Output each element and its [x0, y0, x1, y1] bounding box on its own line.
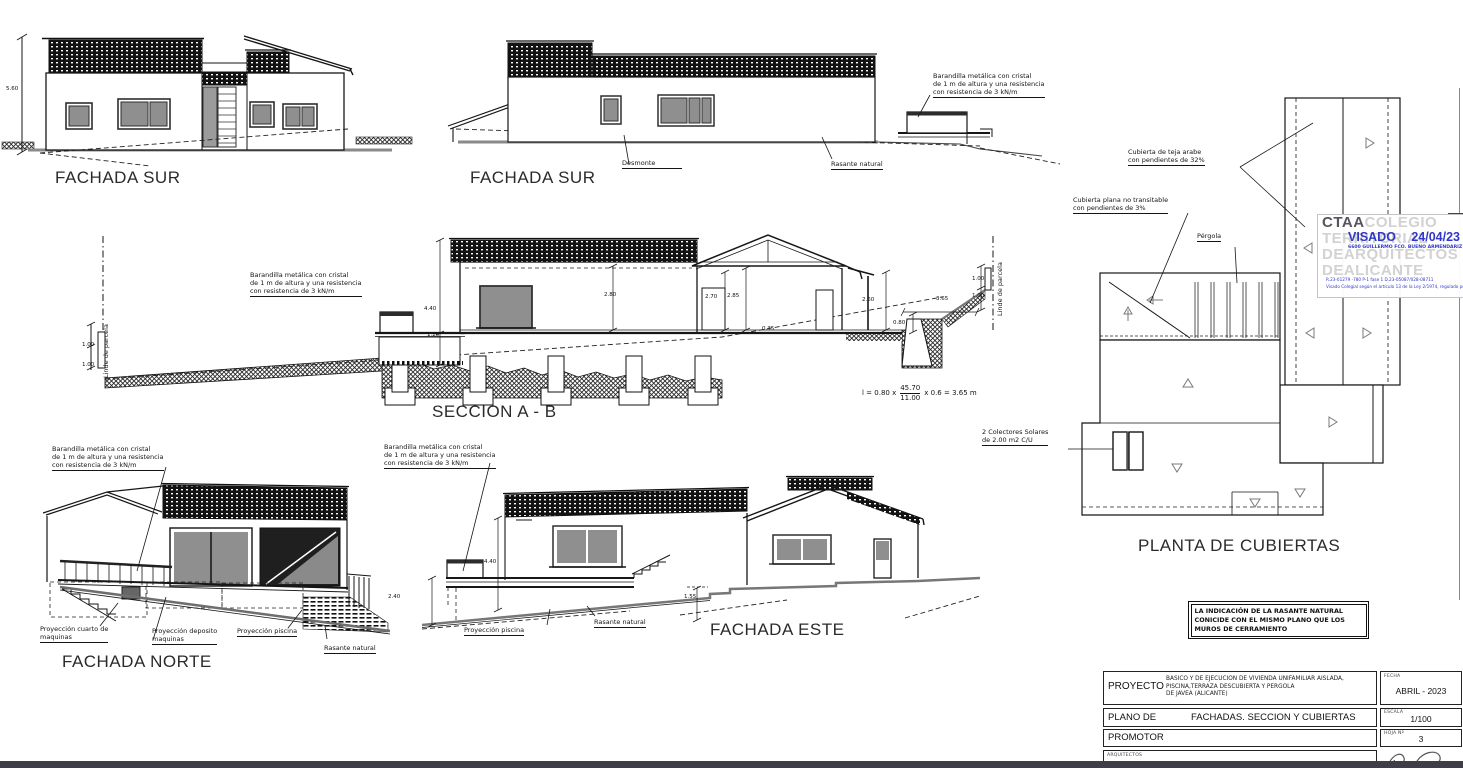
- terrace-railing: [898, 112, 992, 144]
- left-block-wall: [505, 511, 747, 585]
- stamp-ctaa: CTAA: [1322, 214, 1365, 231]
- bottom-bar: [0, 761, 1463, 768]
- roof-plan-mid-block: [1280, 385, 1383, 463]
- roof-tiles-main: [592, 56, 875, 77]
- dim-280: 2.80: [604, 292, 616, 298]
- fachada-sur-2-drawing: [420, 25, 1065, 190]
- barandilla-note-3: Barandilla metálica con cristalde 1 m de…: [52, 445, 164, 471]
- slab-hatch: [846, 334, 902, 341]
- dim-sur-altura: 5.60: [6, 86, 18, 92]
- stamp-visado-word: VISADO: [1348, 230, 1396, 244]
- stamp-colegio: COLEGIO: [1365, 214, 1438, 231]
- height-dimension-line: [17, 34, 27, 155]
- linde-parcela-left: Linde de parcela: [102, 324, 110, 378]
- plano-value: FACHADAS. SECCION Y CUBIERTAS: [1191, 712, 1356, 723]
- linde-parcela-right: Linde de parcela: [996, 262, 1004, 316]
- dim-260: 2.60: [862, 297, 874, 303]
- hoja-value: 3: [1381, 734, 1461, 744]
- fachada-este-label: FACHADA ESTE: [710, 620, 844, 640]
- note-line-2: CONICIDE CON EL MISMO PLANO QUE LOS: [1195, 616, 1363, 625]
- pergola-label: Pérgola: [1197, 232, 1221, 242]
- flat-roof-tiles: [451, 240, 697, 262]
- dim-100-d: 1.00: [972, 293, 984, 299]
- planta-cubiertas-label: PLANTA DE CUBIERTAS: [1138, 536, 1340, 556]
- fecha-value: ABRIL - 2023: [1381, 686, 1461, 696]
- dim-080: 0.80: [893, 320, 905, 326]
- dim-440: 4.40: [424, 306, 436, 312]
- pool-hatch: [303, 597, 388, 632]
- terrace-structure: [379, 337, 460, 365]
- proyeccion-piscina-label-1: Proyección piscina: [237, 627, 297, 637]
- section-window: [480, 286, 532, 328]
- rasante-natural-label-3: Rasante natural: [594, 618, 646, 628]
- rasante-note-box: LA INDICACIÓN DE LA RASANTE NATURAL CONI…: [1188, 601, 1369, 639]
- proyecto-description: BASICO Y DE EJECUCION DE VIVIENDA UNIFAM…: [1166, 676, 1344, 699]
- fecha-label: FECHA: [1384, 674, 1400, 679]
- planta-cubiertas-drawing: [1060, 88, 1463, 538]
- stamp-colegiado: 6600 GUILLERMO FCO. BUENO ARMENDARIZ: [1348, 245, 1462, 250]
- fachada-norte-label: FACHADA NORTE: [62, 652, 212, 672]
- desmonte-label: Desmonte: [622, 159, 682, 169]
- windows: [601, 95, 714, 126]
- fachada-sur-1-drawing: [0, 25, 420, 190]
- rasante-natural-label-2: Rasante natural: [324, 644, 376, 654]
- dim-270: 2.70: [705, 294, 717, 300]
- arquitectos-label: ARQUITECTOS: [1107, 753, 1142, 758]
- barandilla-note-1: Barandilla metálica con cristalde 1 m de…: [933, 72, 1045, 98]
- fachada-sur-2-label: FACHADA SUR: [470, 168, 595, 188]
- lean-to-roof: [448, 104, 510, 142]
- visado-stamp: CTAACOLEGIO TERRITORIAL DEARQUITECTOS DE…: [1317, 214, 1463, 298]
- rasante-dashed: [422, 596, 980, 629]
- seccion-label: SECCION A - B: [432, 402, 557, 422]
- dim-este-440: 4.40: [484, 559, 496, 565]
- stamp-legal-line: Visado Colegial según el artículo 13 de …: [1326, 284, 1463, 289]
- drawing-sheet: 5.60 FACHADA SUR Barandilla metálica con…: [0, 0, 1463, 768]
- cubierta-teja-label: Cubierta de teja arabecon pendientes de …: [1128, 148, 1205, 166]
- solar-collector-1: [1113, 432, 1127, 470]
- dim-285: 2.85: [727, 293, 739, 299]
- roof-tiles: [163, 485, 347, 520]
- proyecto-label: PROYECTO: [1108, 681, 1164, 692]
- note-line-1: LA INDICACIÓN DE LA RASANTE NATURAL: [1195, 607, 1363, 616]
- dim-este-240: 2.40: [388, 594, 400, 600]
- cell-plano: PLANO DE FACHADAS. SECCION Y CUBIERTAS: [1103, 708, 1377, 727]
- dim-100-a: 1.00: [82, 342, 94, 348]
- cell-proyecto: PROYECTO BASICO Y DE EJECUCION DE VIVIEN…: [1103, 671, 1377, 705]
- dim-100-c: 1.00: [972, 276, 984, 282]
- dim-035: 0.35: [762, 326, 774, 332]
- colectores-label: 2 Colectores Solaresde 2.00 m2 C/U: [982, 428, 1048, 446]
- plano-label: PLANO DE: [1108, 712, 1156, 723]
- proyeccion-deposito-label: Proyección depositomaquinas: [152, 627, 217, 645]
- rasante-natural-label-1: Rasante natural: [831, 160, 883, 170]
- title-block: PROYECTO BASICO Y DE EJECUCION DE VIVIEN…: [1103, 669, 1463, 768]
- proyeccion-cuarto-label: Proyección cuarto demaquinas: [40, 625, 108, 643]
- cell-escala: ESCALA 1/100: [1380, 708, 1462, 727]
- proyeccion-piscina-label-2: Proyección piscina: [464, 626, 524, 636]
- cell-fecha: FECHA ABRIL - 2023: [1380, 671, 1462, 705]
- dim-120: 1.20: [427, 332, 439, 338]
- ground-stub-right: [356, 137, 412, 144]
- escala-value: 1/100: [1381, 714, 1461, 724]
- dim-100-b: 1.00: [82, 362, 94, 368]
- roof-tiles-high: [508, 43, 592, 77]
- ground-stub-left: [2, 142, 34, 149]
- dim-este-155: 1.55: [684, 594, 696, 600]
- pendiente-formula: l = 0.80 x 45.70 11.00 x 0.6 = 3.65 m: [862, 384, 977, 403]
- pergola-plan: [1100, 273, 1280, 340]
- cell-hoja: HOJA Nº 3: [1380, 729, 1462, 747]
- cell-promotor: PROMOTOR: [1103, 729, 1377, 747]
- stamp-visado-row: VISADO 24/04/23: [1348, 230, 1460, 244]
- barandilla-note-2: Barandilla metálica con cristalde 1 m de…: [250, 271, 362, 297]
- cubierta-plana-label: Cubierta plana no transitablecon pendien…: [1073, 196, 1168, 214]
- solar-collector-2: [1129, 432, 1143, 470]
- fachada-sur-1-label: FACHADA SUR: [55, 168, 180, 188]
- roof-tiles: [49, 40, 202, 72]
- note-line-3: MUROS DE CERRAMIENTO: [1195, 625, 1363, 634]
- sheet-edge-line: [1459, 88, 1460, 600]
- stamp-ref-line: R.23-01279 -780 P-1 fase 1 D.23-05087/02…: [1326, 277, 1433, 282]
- promotor-label: PROMOTOR: [1108, 732, 1164, 743]
- stamp-visado-date: 24/04/23: [1411, 230, 1460, 244]
- roof-tiles-top: [788, 478, 872, 490]
- section-door-2: [816, 290, 833, 330]
- barandilla-note-4: Barandilla metálica con cristalde 1 m de…: [384, 443, 496, 469]
- entry-door: [203, 87, 217, 147]
- dim-365: 3.65: [936, 296, 948, 302]
